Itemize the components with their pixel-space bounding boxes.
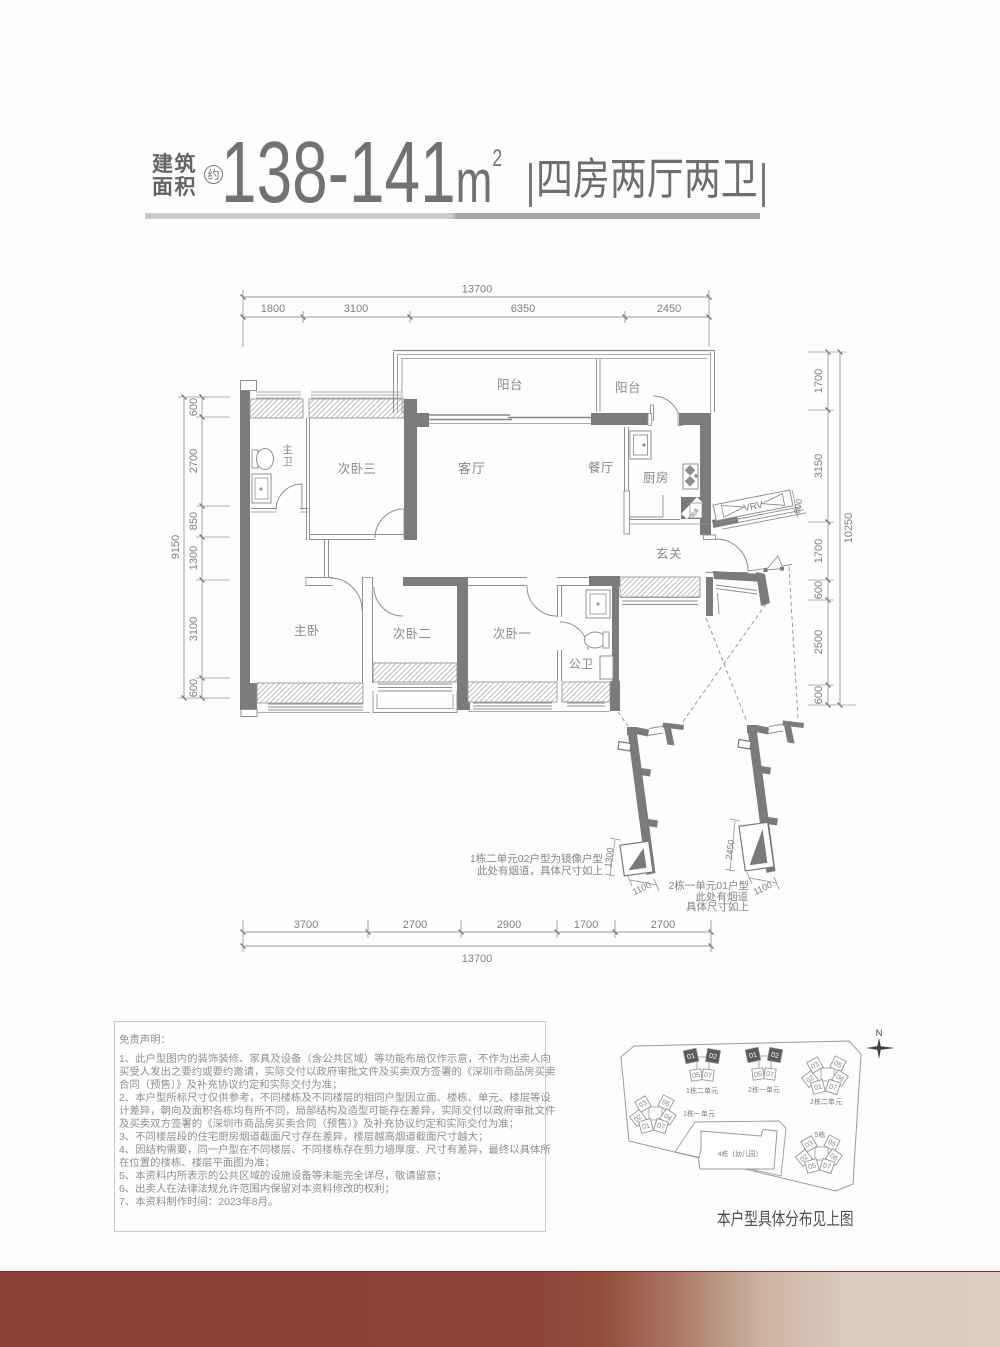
svg-text:600: 600 [813, 686, 825, 704]
svg-text:600: 600 [188, 398, 200, 416]
svg-text:1300: 1300 [603, 847, 616, 868]
svg-text:主卧: 主卧 [294, 624, 320, 638]
svg-text:05: 05 [754, 1071, 763, 1079]
svg-text:9150: 9150 [170, 535, 182, 559]
svg-text:1100: 1100 [631, 880, 653, 897]
svg-text:客厅: 客厅 [458, 461, 486, 476]
svg-text:1700: 1700 [813, 539, 825, 563]
svg-text:餐厅: 餐厅 [588, 460, 614, 475]
svg-text:2700: 2700 [188, 449, 200, 473]
svg-text:厨房: 厨房 [643, 470, 669, 485]
svg-text:1栋二单元: 1栋二单元 [686, 1086, 718, 1095]
svg-text:600: 600 [188, 679, 200, 697]
svg-text:公卫: 公卫 [569, 657, 594, 671]
svg-text:2450: 2450 [657, 303, 681, 315]
svg-text:3100: 3100 [344, 303, 368, 315]
svg-text:1800: 1800 [261, 303, 285, 315]
svg-text:2栋二单元: 2栋二单元 [810, 1097, 842, 1106]
svg-text:玄关: 玄关 [656, 546, 682, 561]
svg-text:5栋: 5栋 [815, 1130, 826, 1139]
svg-text:2栋一单元: 2栋一单元 [748, 1085, 780, 1094]
svg-text:2450: 2450 [724, 839, 737, 860]
svg-text:3100: 3100 [188, 617, 200, 641]
svg-text:2700: 2700 [403, 919, 427, 931]
svg-text:2700: 2700 [651, 919, 675, 931]
svg-text:1栋二单元02户型为镜像户型: 1栋二单元02户型为镜像户型 [470, 852, 603, 865]
svg-text:具体尺寸如上: 具体尺寸如上 [686, 900, 749, 913]
svg-text:阳台: 阳台 [615, 380, 641, 395]
svg-text:1700: 1700 [813, 369, 825, 393]
svg-text:阳台: 阳台 [497, 377, 523, 392]
svg-text:卫: 卫 [282, 456, 293, 468]
svg-text:此处有烟道，具体尺寸如上: 此处有烟道，具体尺寸如上 [477, 864, 603, 877]
svg-text:13700: 13700 [462, 284, 493, 296]
svg-text:1栋一单元: 1栋一单元 [683, 1109, 715, 1118]
svg-text:N: N [876, 1028, 883, 1039]
svg-text:600: 600 [813, 581, 825, 599]
svg-text:02: 02 [708, 1053, 717, 1061]
svg-text:07: 07 [766, 1071, 775, 1079]
svg-text:600: 600 [792, 498, 805, 515]
svg-text:次卧一: 次卧一 [493, 627, 531, 641]
svg-text:3700: 3700 [294, 919, 318, 931]
svg-text:3150: 3150 [813, 454, 825, 478]
svg-text:13700: 13700 [462, 953, 493, 965]
svg-text:次卧二: 次卧二 [393, 627, 431, 641]
svg-text:05: 05 [692, 1072, 701, 1080]
svg-text:07: 07 [704, 1072, 713, 1080]
svg-text:4栋（幼儿园）: 4栋（幼儿园） [718, 1149, 763, 1158]
svg-text:1700: 1700 [574, 919, 598, 931]
svg-text:10250: 10250 [843, 513, 855, 544]
svg-text:次卧三: 次卧三 [338, 462, 376, 476]
svg-text:1100: 1100 [752, 880, 774, 897]
svg-text:2900: 2900 [497, 919, 521, 931]
svg-text:6350: 6350 [511, 303, 535, 315]
svg-text:1300: 1300 [188, 546, 200, 570]
svg-text:02: 02 [770, 1052, 779, 1060]
svg-text:850: 850 [188, 512, 200, 530]
svg-text:主: 主 [282, 444, 293, 456]
svg-text:2500: 2500 [813, 630, 825, 654]
